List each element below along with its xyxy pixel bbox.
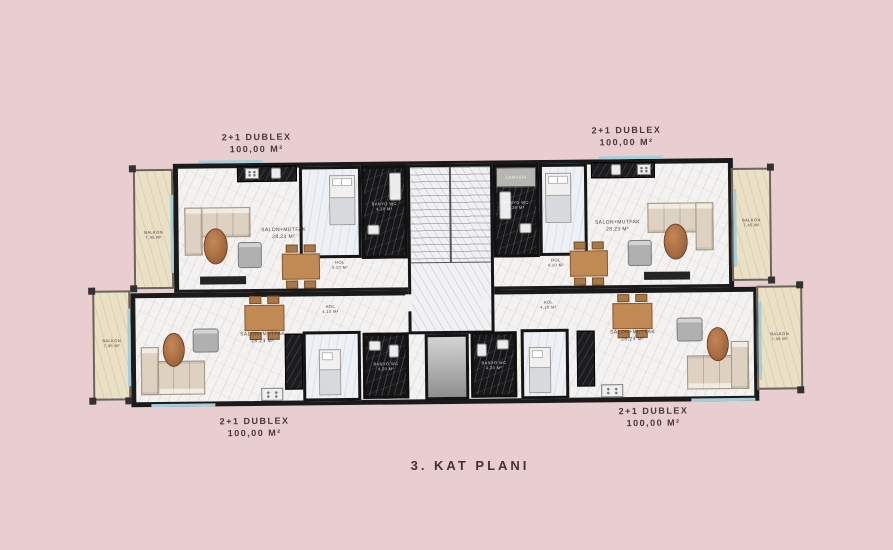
column-post (89, 398, 96, 405)
dining-chair (617, 294, 629, 302)
room-area: 4,10 M² (540, 305, 556, 311)
room-label-salon-top-left: SALON+MUTFAK 28,23 M² (261, 227, 306, 241)
room-area: 4,20 M² (504, 205, 529, 211)
unit-door-right (481, 294, 488, 311)
tv-unit (200, 276, 246, 284)
unit-area: 100,00 M² (619, 417, 689, 430)
pillow (322, 352, 333, 360)
bed (529, 347, 551, 393)
stove-icon (637, 164, 651, 175)
kitchen-sink (271, 168, 281, 179)
kitchen-sink (611, 164, 621, 175)
room-area: 28,23 M² (595, 226, 640, 233)
column-post (125, 397, 132, 404)
armchair (676, 317, 702, 341)
unit-area: 100,00 M² (222, 143, 292, 156)
room-label-balkon: BALKON 7,45 M² (102, 338, 121, 349)
dining-group (282, 244, 320, 288)
bed (329, 175, 356, 225)
unit-label-top-right: 2+1 DUBLEX 100,00 M² (592, 124, 662, 149)
dining-table (282, 253, 320, 279)
room-label-salon-bottom-right: SALON+MUTFAK 28,23 M² (610, 329, 655, 343)
room-area: 7,45 M² (102, 343, 121, 349)
plan-title: 3. KAT PLANI (411, 458, 530, 473)
room-label-salon-bottom-left: SALON+MUTFAK 28,23 M² (240, 331, 285, 345)
armchair (238, 242, 262, 268)
unit-label-top-left: 2+1 DUBLEX 100,00 M² (222, 131, 292, 156)
column-post (130, 285, 137, 292)
room-label-banyo: BANYO WC 4,20 M² (481, 360, 506, 371)
room-area: 28,23 M² (261, 233, 306, 240)
sink-fixture (497, 339, 509, 349)
kitchen-counter (577, 330, 596, 386)
tv-unit (644, 271, 690, 279)
window-strip (691, 398, 755, 402)
room-area: 7,45 M² (742, 223, 761, 229)
unit-area: 100,00 M² (592, 136, 662, 149)
sofa-arm (141, 347, 160, 395)
unit-area: 100,00 M² (220, 427, 290, 440)
column-post (797, 386, 804, 393)
room-label-banyo: BANYO WC 4,20 M² (373, 361, 398, 372)
pillow (341, 178, 352, 186)
armchair (628, 240, 652, 266)
bed (319, 349, 341, 395)
toilet-fixture (477, 344, 487, 357)
sink-fixture (519, 223, 531, 233)
room-area: 4,20 M² (372, 207, 397, 213)
wood-rug (204, 228, 228, 264)
dining-chair (592, 241, 604, 249)
column-post (768, 277, 775, 284)
room-area: 28,23 M² (240, 338, 285, 345)
room-label-hol: HOL 4,10 M² (540, 299, 556, 310)
stove-icon (245, 168, 259, 179)
unit-label-bottom-right: 2+1 DUBLEX 100,00 M² (619, 404, 689, 429)
room-area: 7,45 M² (770, 336, 789, 342)
blanket (530, 367, 550, 392)
blanket (546, 194, 570, 222)
room-label-banyo: BANYO WC 4,20 M² (504, 200, 529, 211)
wood-rug (163, 333, 185, 367)
unit-type: 2+1 DUBLEX (619, 404, 689, 417)
unit-type: 2+1 DUBLEX (220, 415, 290, 428)
room-label-salon-top-right: SALON+MUTFAK 28,23 M² (595, 219, 640, 233)
room-area: 4,20 M² (373, 367, 398, 373)
room-label-hol: HOL 4,10 M² (548, 257, 564, 268)
unit-door-left (405, 294, 412, 311)
wood-rug (707, 327, 729, 361)
dining-chair (304, 280, 316, 288)
room-label-hol: HOL 4,10 M² (322, 304, 338, 315)
elevator-shaft (425, 334, 470, 400)
sofa-arm (695, 202, 714, 250)
room-label-banyo: BANYO WC 4,20 M² (372, 201, 397, 212)
unit-label-bottom-left: 2+1 DUBLEX 100,00 M² (220, 415, 290, 440)
sink-fixture (367, 225, 379, 235)
room-area: 4,20 M² (481, 365, 506, 371)
dining-chair (635, 294, 647, 302)
dining-chair (574, 242, 586, 250)
tub-fixture (389, 172, 401, 200)
stove-icon (261, 388, 283, 401)
dining-chair (249, 296, 261, 304)
room-area: 28,23 M² (610, 336, 655, 343)
stove-icon (601, 384, 623, 397)
dining-chair (286, 281, 298, 289)
room-area: 4,10 M² (322, 309, 338, 315)
dining-chair (267, 296, 279, 304)
column-post (767, 164, 774, 171)
pillow (532, 350, 543, 358)
column-post (88, 288, 95, 295)
room-label-balkon: BALKON 7,45 M² (742, 217, 761, 228)
room-area: 4,10 M² (548, 263, 564, 269)
dining-chair (286, 245, 298, 253)
column-post (796, 281, 803, 288)
unit-type: 2+1 DUBLEX (592, 124, 662, 137)
room-name: ÇAMAŞIR (505, 174, 526, 180)
blanket (320, 369, 340, 394)
kitchen-counter (285, 334, 304, 390)
unit-type: 2+1 DUBLEX (222, 131, 292, 144)
dining-group (570, 241, 608, 285)
blanket (330, 197, 354, 225)
armchair (193, 328, 219, 352)
dining-table (570, 250, 608, 276)
room-label-hol: HOL 4,10 M² (332, 260, 348, 271)
dining-chair (304, 244, 316, 252)
sink-fixture (369, 341, 381, 351)
bed (545, 173, 572, 223)
toilet-fixture (389, 345, 399, 358)
room-label-balkon: BALKON 7,45 M² (770, 331, 789, 342)
dining-table (612, 303, 652, 329)
dining-table (244, 305, 284, 331)
sofa-arm (731, 341, 750, 389)
dining-chair (574, 278, 586, 286)
pillow (557, 176, 568, 184)
room-label-balkon: BALKON 7,45 M² (144, 230, 163, 241)
window-strip (151, 403, 215, 407)
dining-chair (592, 277, 604, 285)
sofa-arm (184, 208, 203, 256)
wood-rug (664, 223, 688, 259)
room-area: 7,45 M² (144, 235, 163, 241)
page: { "plan_title": "3. KAT PLANI", "units":… (0, 0, 893, 545)
room-label-camasir: ÇAMAŞIR (505, 174, 526, 180)
room-area: 4,10 M² (332, 265, 348, 271)
column-post (129, 165, 136, 172)
